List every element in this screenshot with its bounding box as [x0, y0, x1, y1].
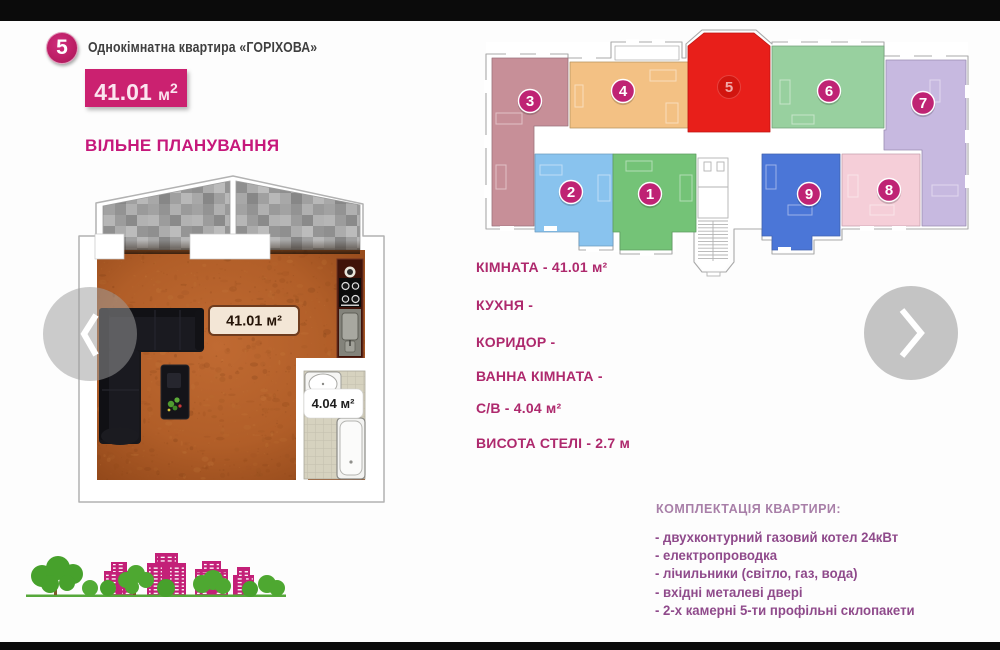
svg-text:9: 9 — [805, 186, 813, 203]
svg-text:2: 2 — [567, 184, 575, 201]
svg-text:8: 8 — [885, 182, 893, 199]
svg-text:6: 6 — [825, 83, 833, 100]
svg-text:1: 1 — [646, 186, 654, 203]
svg-text:7: 7 — [919, 95, 927, 112]
svg-text:41.01 м²: 41.01 м² — [226, 314, 282, 330]
svg-text:3: 3 — [526, 93, 534, 110]
svg-text:4: 4 — [619, 83, 628, 100]
svg-text:4.04 м²: 4.04 м² — [312, 396, 356, 411]
svg-text:5: 5 — [725, 79, 733, 96]
